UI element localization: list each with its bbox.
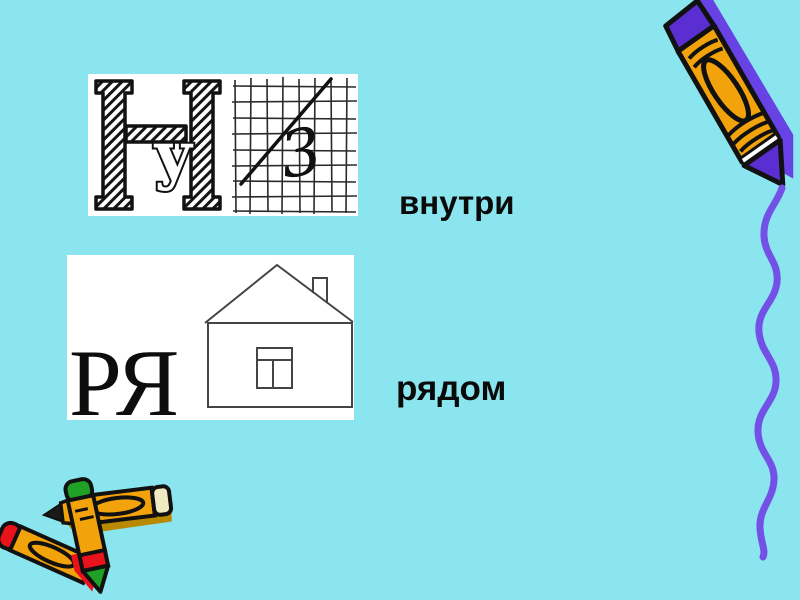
cream-cap [151, 486, 171, 516]
slide: у 3 внутри РЯ рядом [0, 0, 800, 600]
crayon-clipart [600, 0, 800, 600]
word-beside: рядом [396, 369, 506, 409]
rebus-card-inside: у 3 [88, 74, 358, 216]
pencil-cream-cap [42, 486, 174, 539]
house-window-panes [257, 360, 292, 388]
house-drawing-icon [205, 265, 353, 407]
rebus-card-beside: РЯ [67, 255, 354, 420]
house-roof [205, 265, 353, 323]
rebus-inside-image: у 3 [88, 74, 358, 216]
crossed-crayons-clipart [0, 468, 180, 600]
word-inside: внутри [399, 184, 515, 222]
inner-letter-u: у [153, 118, 194, 193]
rebus-beside-image: РЯ [67, 255, 354, 420]
purple-scribble-line [758, 188, 782, 557]
house-chimney [313, 278, 327, 303]
crayon-group [660, 0, 800, 197]
house-body [208, 323, 352, 407]
letters-rya: РЯ [69, 330, 179, 420]
house-window [257, 348, 292, 388]
